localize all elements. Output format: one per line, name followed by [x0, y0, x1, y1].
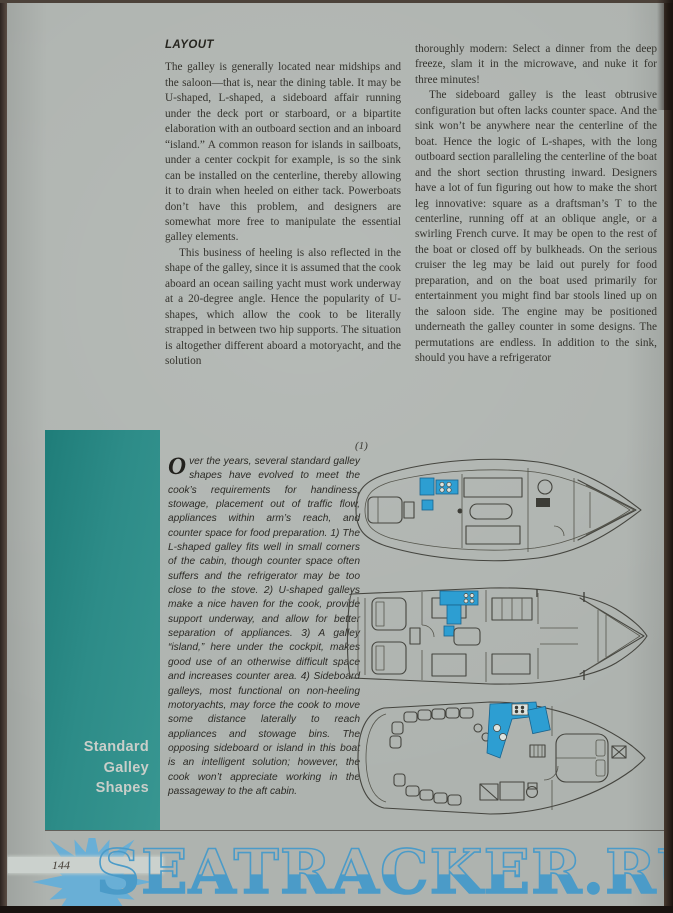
photo-corner-shadow	[657, 0, 673, 110]
photo-edge-top	[0, 0, 673, 3]
aft-cabin-motoryacht-deck-plan	[347, 588, 647, 684]
galley-deck-plan-diagrams	[340, 440, 668, 832]
photo-edge-right	[664, 0, 673, 913]
sidebar-panel: Standard Galley Shapes	[45, 430, 160, 830]
section-heading: LAYOUT	[165, 38, 401, 53]
figure-caption: Over the years, several standard galley …	[168, 455, 360, 799]
paragraph: The galley is generally located near mid…	[165, 60, 401, 245]
right-column: thoroughly modern: Select a dinner from …	[415, 42, 657, 367]
sailboat-deck-plan	[356, 459, 641, 560]
watermark: SEATRACKER.RU SEATRACKER.RU	[96, 838, 673, 908]
figure-bottom-rule	[45, 830, 668, 831]
paragraph: The sideboard galley is the least obtrus…	[415, 88, 657, 366]
left-column: LAYOUT The galley is generally located n…	[165, 38, 401, 370]
scanned-book-page: LAYOUT The galley is generally located n…	[0, 0, 673, 913]
paragraph: thoroughly modern: Select a dinner from …	[415, 42, 657, 88]
page-number: 144	[52, 858, 70, 873]
photo-edge-left	[0, 0, 7, 913]
caption-dropcap: O	[168, 456, 186, 477]
photo-edge-bottom	[0, 906, 673, 913]
paragraph: This business of heeling is also reflect…	[165, 246, 401, 370]
flybridge-motoryacht-deck-plan	[358, 702, 645, 814]
caption-text: ver the years, several standard galley s…	[168, 456, 360, 797]
sidebar-title: Standard Galley Shapes	[84, 737, 149, 799]
